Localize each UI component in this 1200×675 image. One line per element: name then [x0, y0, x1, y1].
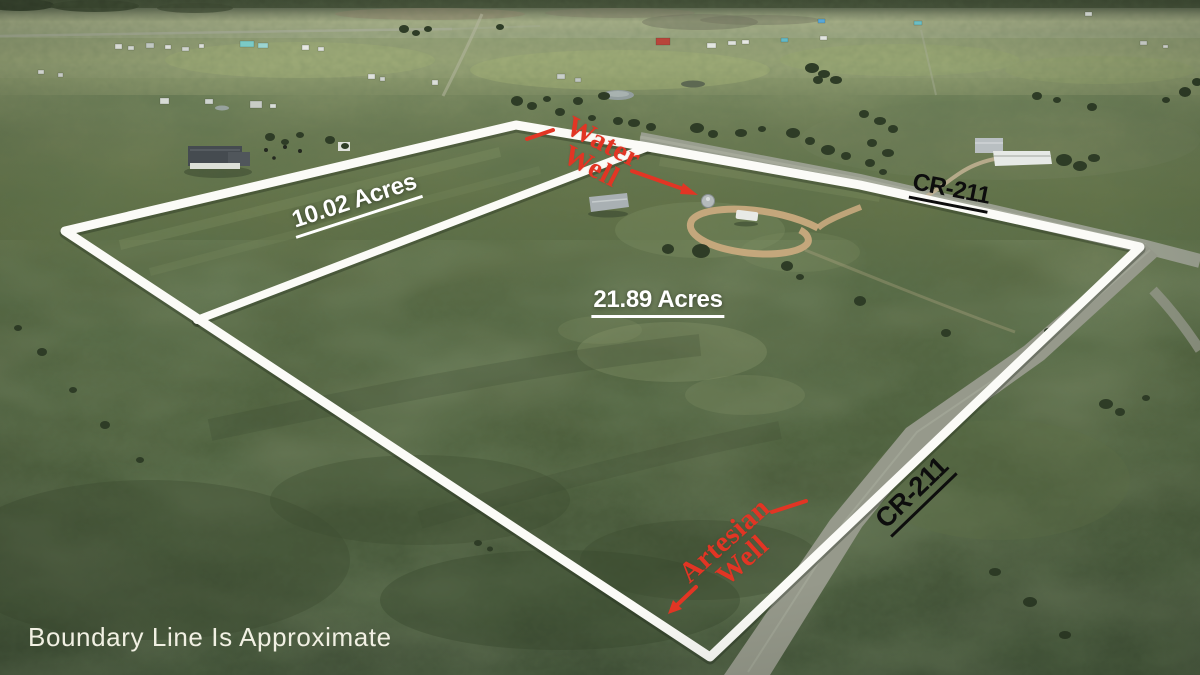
aerial-scene	[0, 0, 1200, 675]
boundary-disclaimer: Boundary Line Is Approximate	[28, 622, 392, 653]
vignette	[0, 0, 1200, 675]
parcel-label-21-acres: 21.89 Acres	[591, 286, 724, 318]
aerial-property-photo: 10.02 Acres 21.89 Acres CR-211 CR-211 Wa…	[0, 0, 1200, 675]
